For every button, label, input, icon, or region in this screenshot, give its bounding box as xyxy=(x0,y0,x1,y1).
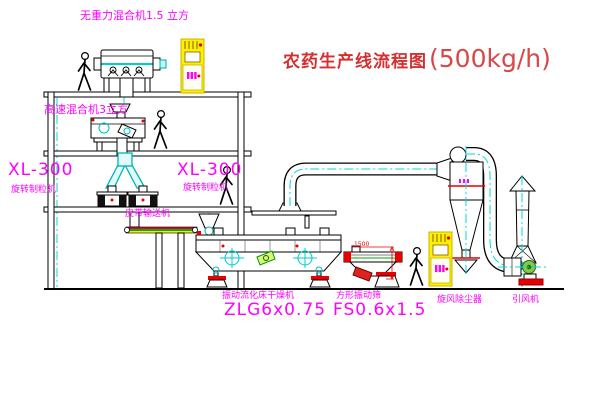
granulator-feed-y-pipe xyxy=(106,153,145,188)
label-granulator-right-model: XL-300 xyxy=(177,162,242,179)
label-granulator-left-model: XL-300 xyxy=(8,162,73,179)
label-granulator-right-name: 旋转制粒机 xyxy=(183,184,228,193)
flow-diagram-canvas: 农药生产线流程图 (500kg/h) 无重力混合机1.5 立方 高速混合机3立方… xyxy=(0,0,600,403)
label-dryer-model: ZLG6x0.75 xyxy=(224,302,326,319)
label-high-speed-mixer: 高速混合机3立方 xyxy=(44,104,128,115)
vibrating-screen-machine xyxy=(344,246,402,287)
title-text: 农药生产线流程图 xyxy=(283,47,427,72)
label-granulator-left-name: 旋转制粒机 xyxy=(11,186,56,195)
granulator-left-machine xyxy=(97,186,127,206)
control-cabinet-top xyxy=(181,39,204,93)
label-belt-conveyor: 皮带输送机 xyxy=(125,210,170,219)
label-gravity-mixer: 无重力混合机1.5 立方 xyxy=(80,10,189,21)
granulator-right-machine xyxy=(128,186,158,206)
cyclone-machine xyxy=(448,146,485,274)
label-cyclone: 旋风除尘器 xyxy=(437,296,482,305)
belt-conveyor-machine xyxy=(124,212,197,288)
fluid-bed-dryer-machine xyxy=(196,203,341,287)
title-capacity: (500kg/h) xyxy=(429,44,551,73)
exhaust-duct-1 xyxy=(290,158,452,206)
diagram-title: 农药生产线流程图 (500kg/h) xyxy=(283,44,551,73)
worker-figure-second-floor xyxy=(155,111,167,148)
label-screen-model: FS0.6x1.5 xyxy=(333,302,426,319)
dimension-screen-length: 1500 xyxy=(354,241,369,248)
label-fan: 引风机 xyxy=(512,296,539,305)
control-cabinet-ground xyxy=(429,232,452,286)
gravity-mixer-machine xyxy=(94,50,166,97)
worker-figure-ground xyxy=(411,248,423,285)
worker-figure-top-floor xyxy=(79,53,91,90)
